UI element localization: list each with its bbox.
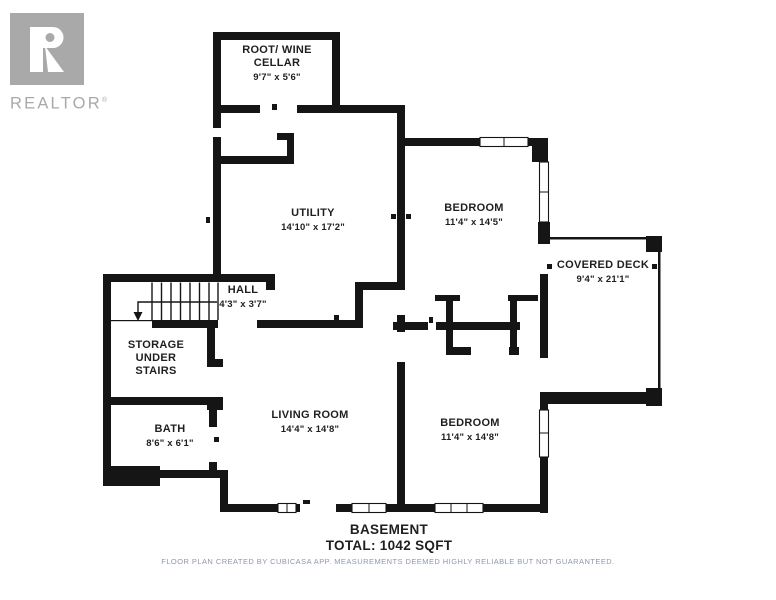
room-name: UTILITY — [281, 207, 345, 220]
room-label-bedroom-bottom: BEDROOM 11'4" x 14'8" — [440, 417, 500, 443]
stairs — [111, 283, 218, 322]
room-name: BATH — [146, 423, 193, 436]
room-name: BEDROOM — [440, 417, 500, 430]
room-name: ROOT/ WINE CELLAR — [242, 44, 312, 70]
floor-summary: BASEMENT TOTAL: 1042 SQFT — [326, 522, 453, 554]
room-label-hall: HALL 4'3" x 3'7" — [219, 284, 266, 310]
room-label-utility: UTILITY 14'10" x 17'2" — [281, 207, 345, 233]
room-name: STORAGE UNDER STAIRS — [128, 339, 184, 378]
room-label-living-room: LIVING ROOM 14'4" x 14'8" — [271, 409, 348, 435]
room-label-root-wine-cellar: ROOT/ WINE CELLAR 9'7" x 5'6" — [242, 44, 312, 83]
room-dimensions: 14'10" x 17'2" — [281, 222, 345, 233]
room-dimensions: 9'4" x 21'1" — [557, 274, 649, 285]
room-dimensions: 8'6" x 6'1" — [146, 438, 193, 449]
room-label-storage-under-stairs: STORAGE UNDER STAIRS — [128, 339, 184, 378]
room-name: COVERED DECK — [557, 259, 649, 272]
room-name: HALL — [219, 284, 266, 297]
room-dimensions: 9'7" x 5'6" — [242, 72, 312, 83]
room-dimensions: 11'4" x 14'8" — [440, 432, 500, 443]
floor-plan-page: REALTOR® — [0, 0, 776, 600]
room-name: LIVING ROOM — [271, 409, 348, 422]
room-label-bedroom-top: BEDROOM 11'4" x 14'5" — [444, 202, 504, 228]
room-dimensions: 14'4" x 14'8" — [271, 424, 348, 435]
room-label-bath: BATH 8'6" x 6'1" — [146, 423, 193, 449]
stair-direction-arrow — [138, 302, 217, 313]
floor-name: BASEMENT — [326, 522, 453, 538]
room-dimensions: 11'4" x 14'5" — [444, 217, 504, 228]
room-name: BEDROOM — [444, 202, 504, 215]
floor-total-sqft: TOTAL: 1042 SQFT — [326, 538, 453, 554]
disclaimer-text: FLOOR PLAN CREATED BY CUBICASA APP. MEAS… — [0, 557, 776, 566]
room-label-covered-deck: COVERED DECK 9'4" x 21'1" — [557, 259, 649, 285]
room-dimensions: 4'3" x 3'7" — [219, 299, 266, 310]
floor-plan-svg — [0, 0, 776, 600]
